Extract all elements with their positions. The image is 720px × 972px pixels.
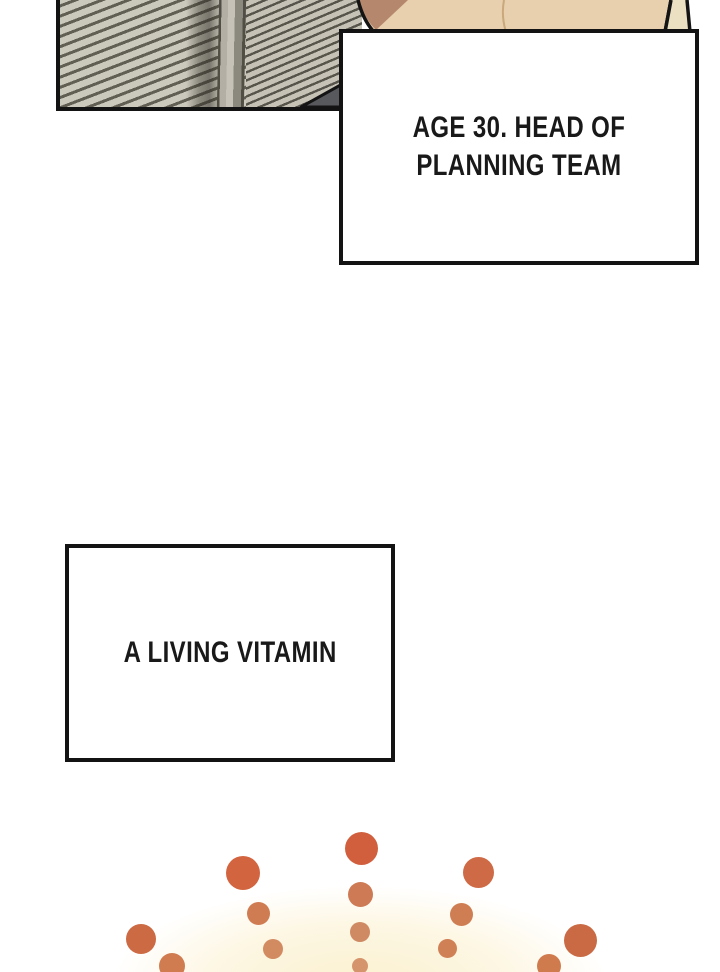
character-closeup	[350, 0, 702, 32]
caption-box-age: AGE 30. HEAD OF PLANNING TEAM	[339, 29, 699, 265]
comic-page: AGE 30. HEAD OF PLANNING TEAM A LIVING V…	[0, 0, 720, 972]
window-frame-divider	[217, 0, 246, 109]
skin-area	[358, 0, 671, 32]
caption-text-age: AGE 30. HEAD OF PLANNING TEAM	[413, 109, 626, 185]
caption-text-vitamin: A LIVING VITAMIN	[123, 634, 336, 672]
sparkle-glow	[20, 860, 700, 972]
caption-box-vitamin: A LIVING VITAMIN	[65, 544, 395, 762]
window-blinds-panel	[56, 0, 362, 111]
